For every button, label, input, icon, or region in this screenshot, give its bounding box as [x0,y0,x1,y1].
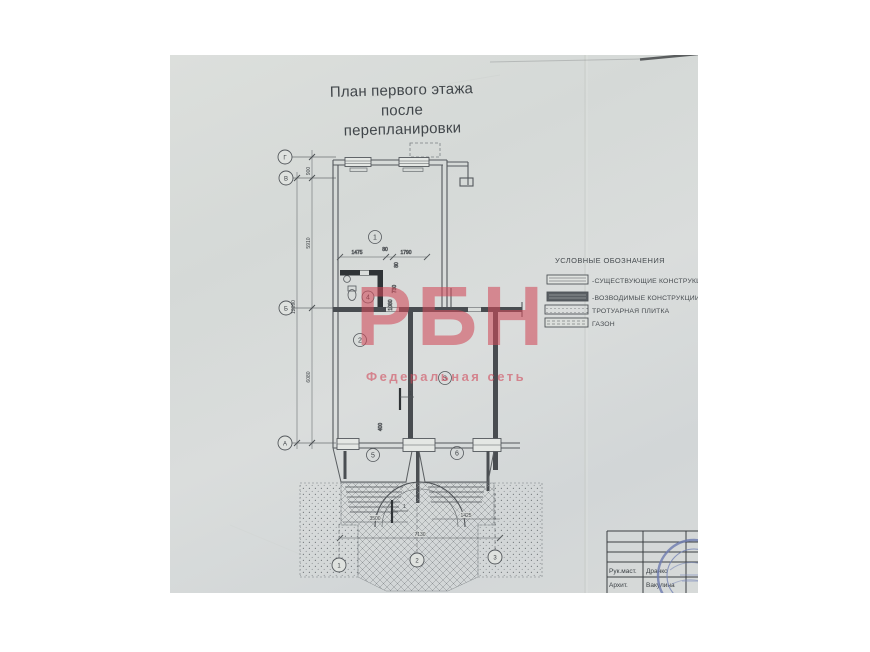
legend-item-label: ТРОТУАРНАЯ ПЛИТКА [592,308,670,315]
bathroom-fixtures [344,276,356,301]
scanned-photo-stage: Г В Б А 900 5910 6080 12090 [0,0,870,652]
titleblock-role: Архит. [609,582,628,589]
legend-item-label: -ВОЗВОДИМЫЕ КОНСТРУКЦИИ [592,295,698,302]
legend: УСЛОВНЫЕ ОБОЗНАЧЕНИЯ -СУЩЕСТВУЮЩИЕ КОНСТ… [545,256,698,328]
dimension-label: 1425 [460,513,471,519]
page-title: План первого этажа после перепланировки [321,79,482,142]
title-block-text: Рук.маст. Дранко Архит. Вакулина [609,568,675,589]
dimension-label: 6080 [306,371,312,382]
watermark-logo: РБН [356,274,556,358]
legend-item-label: ГАЗОН [592,321,615,328]
dimension-label: 7130 [414,532,425,538]
dimension-label: 900 [306,167,312,176]
room-number: 1 [373,235,377,242]
dimension-label: 80 [394,262,400,268]
axis-circles-left: Г В Б А [278,150,293,450]
axis-label: А [283,442,287,448]
canopy-dashed-outline [410,143,440,157]
legend-item-label: -СУЩЕСТВУЮЩИЕ КОНСТРУКЦИИ [592,278,698,285]
room-number: 6 [455,451,459,458]
radiators [350,168,423,172]
document-photo: Г В Б А 900 5910 6080 12090 [170,55,698,593]
dimension-label: 1790 [400,250,411,256]
dimension-label: 400 [378,423,384,432]
dimension-label: 3500 [369,516,380,522]
page-title-line2: после перепланировки [322,98,483,141]
paper-edge-shadow [490,55,698,62]
room-number: 5 [371,453,375,460]
legend-title: УСЛОВНЫЕ ОБОЗНАЧЕНИЯ [555,256,665,265]
section-mark-label: 1 [403,504,406,510]
loggia-bays [333,448,494,482]
titleblock-role: Рук.маст. [609,568,637,575]
left-dimension-labels: 900 5910 6080 12090 [291,167,312,383]
page-title-line1: План первого этажа [321,79,481,103]
axis-label: В [284,177,288,183]
dimension-label: 5910 [306,237,312,248]
dimension-label: 80 [382,247,388,253]
section-mark-label: 1 [409,391,412,397]
sink-icon [344,276,351,283]
dimension-label: 1475 [351,250,362,256]
watermark-subtitle: Федеральная сеть [366,369,526,384]
axis-grid-left [292,150,336,449]
dimension-label: 12090 [291,300,297,314]
axis-label: Б [284,307,288,313]
